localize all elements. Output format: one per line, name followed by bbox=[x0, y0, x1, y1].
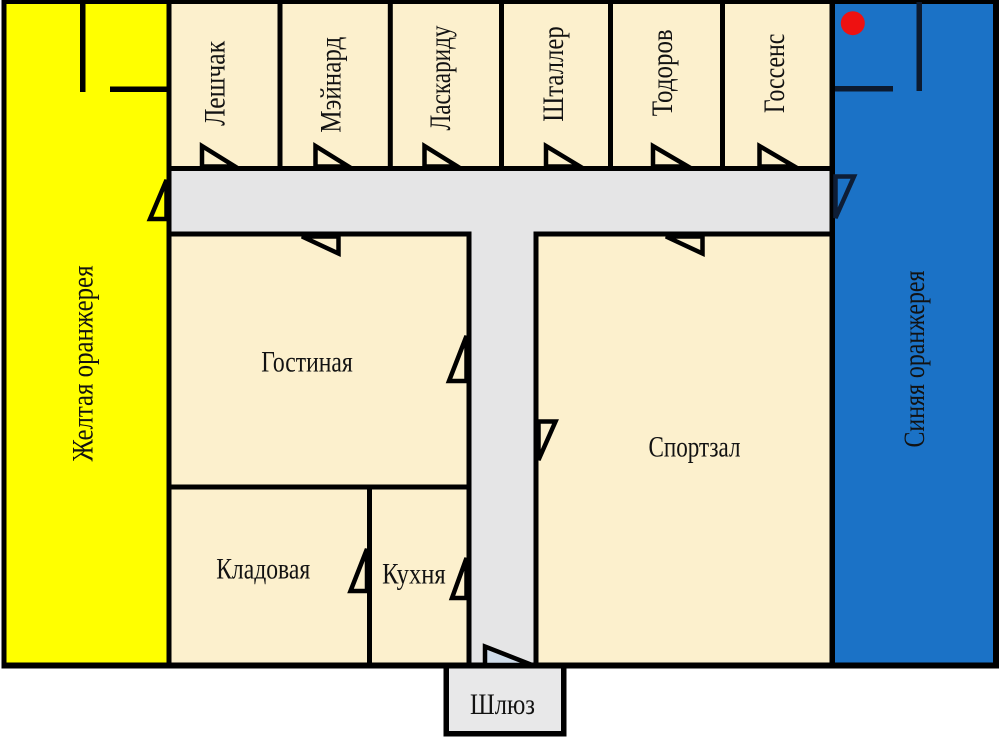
svg-text:Кухня: Кухня bbox=[382, 557, 446, 590]
svg-text:Синяя оранжерея: Синяя оранжерея bbox=[898, 270, 931, 447]
svg-text:Гостиная: Гостиная bbox=[261, 346, 353, 379]
svg-text:Госсенс: Госсенс bbox=[758, 34, 791, 114]
svg-text:Шталлер: Шталлер bbox=[537, 26, 570, 122]
svg-text:Желтая оранжерея: Желтая оранжерея bbox=[67, 265, 100, 461]
svg-text:Мэйнард: Мэйнард bbox=[314, 37, 347, 133]
svg-text:Лешчак: Лешчак bbox=[199, 41, 232, 126]
svg-text:Спортзал: Спортзал bbox=[649, 431, 741, 464]
svg-text:Тодоров: Тодоров bbox=[646, 29, 679, 116]
svg-text:Шлюз: Шлюз bbox=[470, 688, 535, 721]
svg-text:Кладовая: Кладовая bbox=[216, 553, 310, 586]
svg-text:Ласкариду: Ласкариду bbox=[424, 26, 457, 131]
